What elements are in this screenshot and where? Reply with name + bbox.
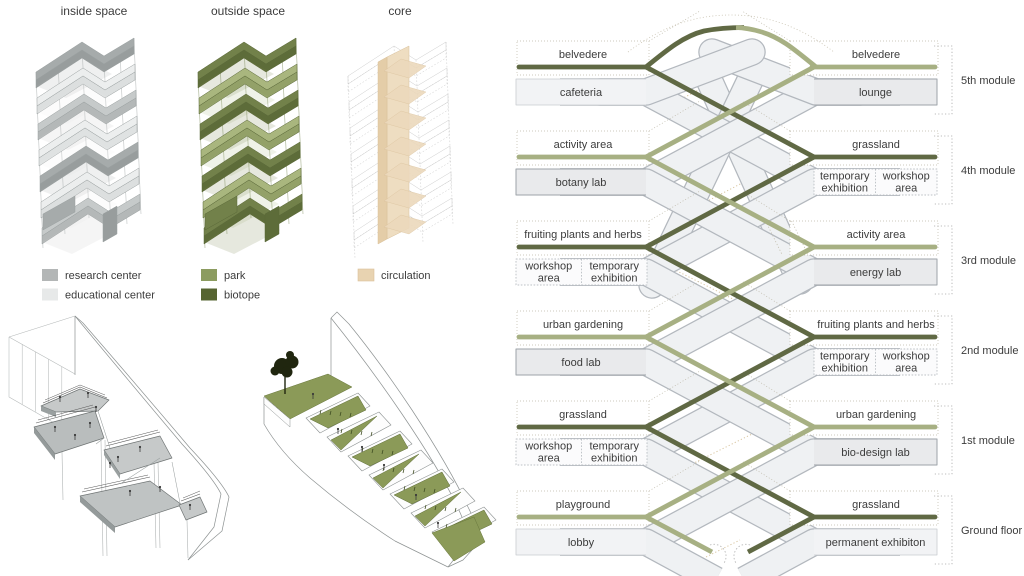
svg-text:temporary: temporary: [820, 351, 870, 363]
svg-text:permanent exhibiton: permanent exhibiton: [826, 537, 926, 549]
svg-text:area: area: [895, 363, 918, 375]
svg-text:grassland: grassland: [559, 409, 607, 421]
svg-text:cafeteria: cafeteria: [560, 87, 603, 99]
svg-text:biotope: biotope: [224, 290, 260, 302]
svg-text:workshop: workshop: [524, 261, 572, 273]
svg-text:area: area: [538, 453, 561, 465]
svg-text:urban gardening: urban gardening: [836, 409, 916, 421]
svg-text:fruiting plants and herbs: fruiting plants and herbs: [524, 229, 642, 241]
svg-text:Ground floor: Ground floor: [961, 525, 1022, 537]
svg-text:grassland: grassland: [852, 499, 900, 511]
svg-text:exhibition: exhibition: [591, 453, 637, 465]
svg-text:1st module: 1st module: [961, 435, 1015, 447]
svg-text:workshop: workshop: [882, 351, 930, 363]
svg-text:urban gardening: urban gardening: [543, 319, 623, 331]
svg-text:exhibition: exhibition: [822, 363, 868, 375]
svg-text:playground: playground: [556, 499, 610, 511]
svg-text:food lab: food lab: [561, 357, 600, 369]
svg-text:exhibition: exhibition: [822, 183, 868, 195]
svg-text:belvedere: belvedere: [852, 49, 900, 61]
svg-text:educational center: educational center: [65, 290, 155, 302]
svg-text:lounge: lounge: [859, 87, 892, 99]
svg-text:park: park: [224, 270, 246, 282]
svg-text:research center: research center: [65, 270, 142, 282]
svg-text:2nd module: 2nd module: [961, 345, 1019, 357]
svg-text:workshop: workshop: [882, 171, 930, 183]
svg-text:area: area: [538, 273, 561, 285]
svg-text:area: area: [895, 183, 918, 195]
svg-text:4th module: 4th module: [961, 165, 1015, 177]
svg-text:exhibition: exhibition: [591, 273, 637, 285]
svg-text:activity area: activity area: [554, 139, 614, 151]
svg-text:circulation: circulation: [381, 270, 431, 282]
svg-text:temporary: temporary: [589, 441, 639, 453]
svg-text:fruiting plants and herbs: fruiting plants and herbs: [817, 319, 935, 331]
svg-text:energy lab: energy lab: [850, 267, 901, 279]
svg-text:core: core: [388, 4, 412, 18]
svg-text:belvedere: belvedere: [559, 49, 607, 61]
svg-text:botany lab: botany lab: [556, 177, 607, 189]
svg-text:grassland: grassland: [852, 139, 900, 151]
svg-text:temporary: temporary: [820, 171, 870, 183]
svg-text:temporary: temporary: [589, 261, 639, 273]
svg-text:lobby: lobby: [568, 537, 595, 549]
svg-text:inside space: inside space: [61, 4, 128, 18]
svg-text:outside space: outside space: [211, 4, 285, 18]
svg-text:3rd module: 3rd module: [961, 255, 1016, 267]
svg-text:bio-design lab: bio-design lab: [841, 447, 910, 459]
svg-text:workshop: workshop: [524, 441, 572, 453]
svg-text:5th module: 5th module: [961, 75, 1015, 87]
svg-text:activity area: activity area: [847, 229, 907, 241]
